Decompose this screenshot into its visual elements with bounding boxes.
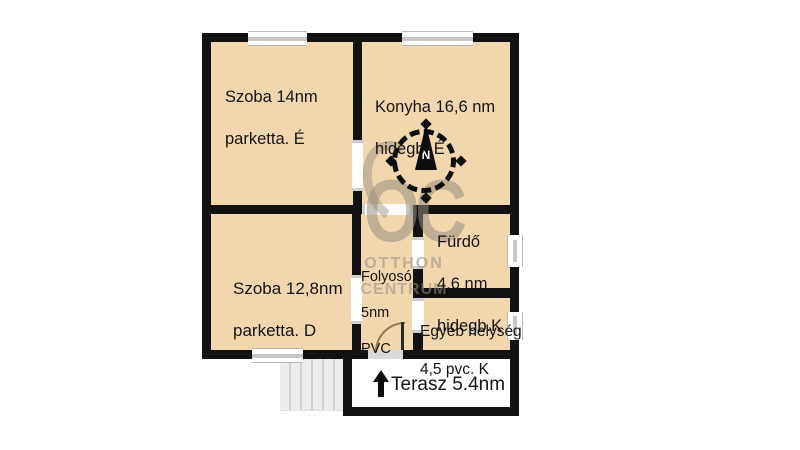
label-folyoso-line3: PVC [361, 341, 391, 357]
window-konyha-top [402, 31, 473, 46]
terrace-arrow-stem [378, 380, 384, 397]
label-furdo-line2: 4,6 nm [437, 275, 487, 293]
door-szoba14-konyha [352, 140, 363, 191]
wall-outer-left [202, 33, 211, 359]
label-szoba14-line1: Szoba 14nm [225, 88, 318, 106]
window-furdo-right [507, 235, 523, 267]
label-szoba128: Szoba 12,8nm parketta. D [233, 257, 343, 341]
wall-terrace-bottom [343, 407, 519, 416]
window-szoba14-top [248, 31, 307, 46]
label-folyoso-line2: 5nm [361, 305, 389, 321]
label-szoba14-line2: parketta. É [225, 130, 305, 148]
label-szoba128-line2: parketta. D [233, 321, 316, 340]
label-egyeb-helyseg: Egyéb helység 4,5 pvc. K [420, 303, 522, 379]
label-konyha: Konyha 16,6 nm hidegb. É [375, 76, 495, 160]
stairs [280, 359, 346, 411]
label-egyeb-line1: Egyéb helység [420, 323, 522, 340]
label-folyoso: Folyosó 5nm PVC [361, 250, 412, 358]
floorplan-canvas: OC OTTHON CENTRUM N Szoba 14nm parketta.… [0, 0, 800, 450]
label-furdo-line1: Fürdő [437, 233, 480, 251]
label-szoba14: Szoba 14nm parketta. É [225, 66, 318, 150]
window-szoba128-bottom [252, 348, 303, 363]
label-folyoso-line1: Folyosó [361, 269, 412, 285]
label-szoba128-line1: Szoba 12,8nm [233, 279, 343, 298]
label-terasz: Terasz 5.4nm [391, 373, 505, 397]
label-konyha-line2: hidegb. É [375, 140, 445, 158]
label-konyha-line1: Konyha 16,6 nm [375, 98, 495, 116]
